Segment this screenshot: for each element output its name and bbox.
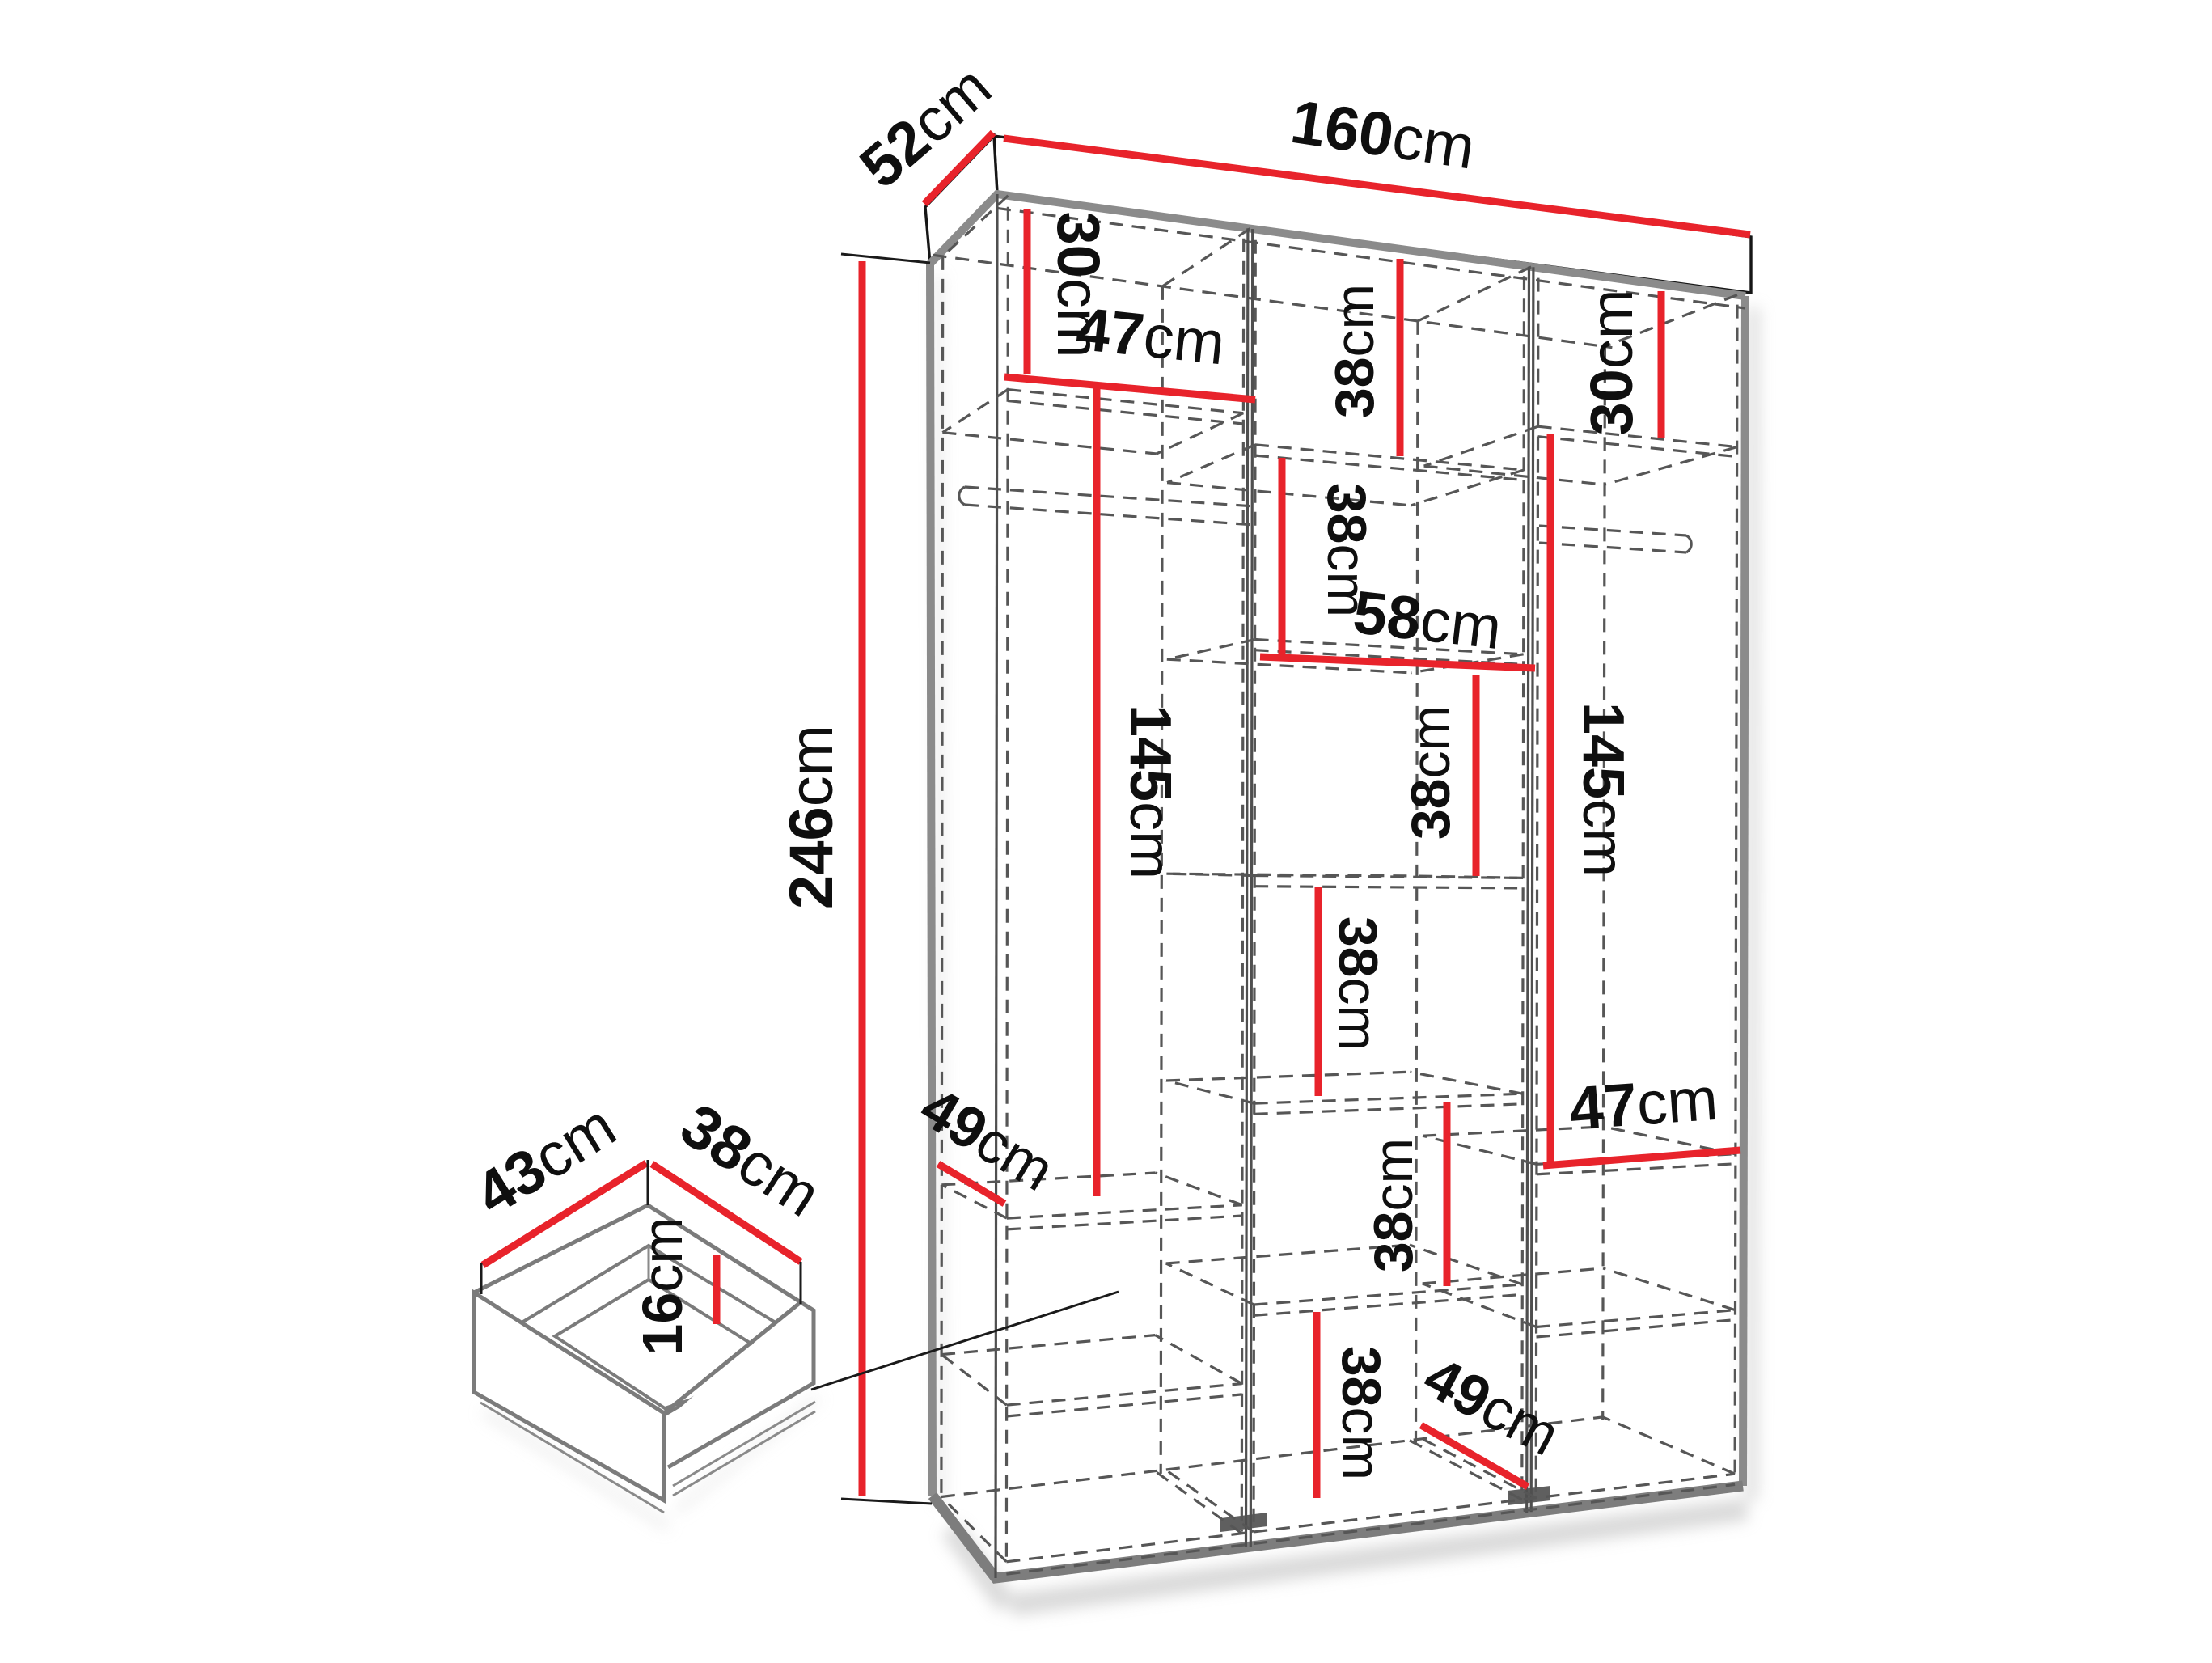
svg-text:16cm: 16cm <box>631 1217 694 1355</box>
svg-text:38cm: 38cm <box>1324 284 1385 418</box>
svg-text:38cm: 38cm <box>1327 916 1389 1051</box>
svg-text:145cm: 145cm <box>1571 702 1635 877</box>
svg-text:38cm: 38cm <box>1363 1138 1424 1272</box>
svg-text:246cm: 246cm <box>777 725 846 909</box>
svg-text:47cm: 47cm <box>1567 1064 1720 1143</box>
svg-text:30cm: 30cm <box>1578 290 1645 436</box>
svg-text:38cm: 38cm <box>1330 1346 1392 1480</box>
svg-text:145cm: 145cm <box>1118 705 1182 879</box>
svg-text:38cm: 38cm <box>1400 705 1461 840</box>
